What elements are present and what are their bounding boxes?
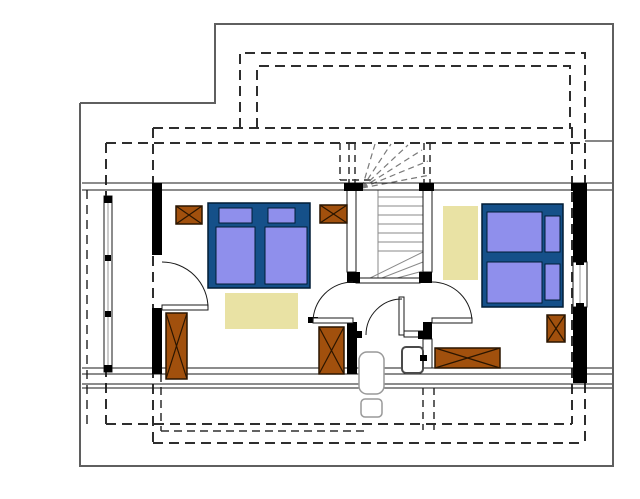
stair-winder-dashed-2	[362, 144, 391, 188]
bed-1-pillow-left	[219, 208, 252, 223]
door-bedroom1-swing	[313, 282, 353, 322]
bed-1-pillow-right	[268, 208, 295, 223]
stair-base-edge	[356, 278, 420, 283]
stair-wall-right	[423, 190, 432, 272]
door-bath-swing	[366, 299, 402, 335]
appliance-handle	[420, 355, 427, 361]
east-window-cap-bottom	[576, 303, 584, 308]
dormer-roof-inner-dashed	[257, 66, 570, 128]
wall-bath-stub-east	[418, 331, 425, 339]
west-window-mullion-1	[105, 255, 111, 261]
door-bath-leaf	[399, 297, 404, 335]
door-bedroom2-swing	[432, 282, 472, 322]
stair-wall-left	[347, 190, 356, 272]
door-bedroom1-leaf	[313, 318, 353, 323]
appliance-box	[402, 347, 423, 373]
west-window-mullion-2	[105, 311, 111, 317]
wall-west-upper	[152, 183, 162, 255]
wall-west-lower	[152, 308, 162, 374]
stair-winder-dashed-5	[362, 161, 428, 188]
stair-wall-right-lower	[423, 339, 432, 368]
rug-bedroom-2	[443, 206, 478, 280]
bed-1-mattress-right	[265, 227, 307, 284]
wall-north-stair-left	[344, 183, 363, 191]
wall-bath-stub-west	[347, 331, 362, 338]
wall-hall-stub-left	[347, 272, 360, 283]
bed-1-mattress-left	[216, 227, 255, 284]
rug-bedroom-1	[225, 293, 298, 329]
floor-plan-page	[0, 0, 640, 499]
wall-hall-left-lower	[347, 322, 357, 374]
east-window-cap-top	[576, 260, 584, 265]
chair-outline-back	[359, 352, 384, 394]
west-window-cap-top	[104, 196, 112, 203]
bed-2-mattress-top	[487, 212, 542, 252]
chair-outline-seat	[361, 399, 382, 417]
door-balcony-swing	[162, 262, 208, 308]
wall-north-stair-right	[419, 183, 434, 191]
wall-hall-stub-right	[419, 272, 432, 283]
bed-2-pillow-top	[545, 216, 560, 252]
bed-2-mattress-bottom	[487, 262, 542, 303]
west-window-cap-bottom	[104, 365, 112, 372]
door-bedroom2-leaf	[432, 318, 472, 323]
wall-east-lower	[573, 307, 587, 383]
floor-plan-canvas	[0, 0, 640, 499]
bed-2-pillow-bottom	[545, 264, 560, 300]
door-balcony-leaf	[162, 305, 208, 310]
wall-east-upper	[573, 188, 587, 262]
